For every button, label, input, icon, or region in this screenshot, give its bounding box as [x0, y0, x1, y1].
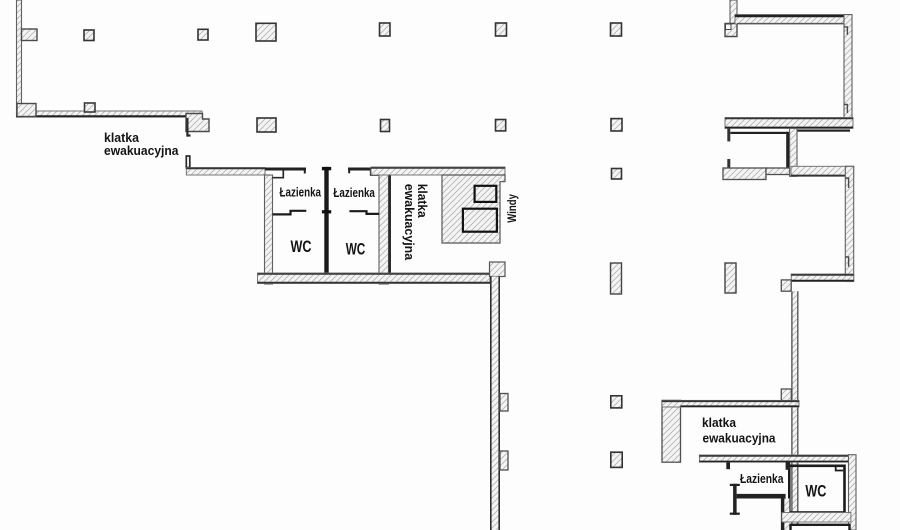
svg-text:WC: WC: [346, 239, 366, 258]
svg-text:Łazienka: Łazienka: [280, 185, 322, 200]
svg-text:ewakuacyjna: ewakuacyjna: [104, 143, 179, 158]
svg-text:Windy: Windy: [507, 194, 519, 223]
svg-text:klatka: klatka: [702, 415, 737, 430]
svg-text:ewakuacyjna: ewakuacyjna: [402, 184, 417, 261]
svg-text:Łazienka: Łazienka: [740, 471, 784, 486]
svg-text:WC: WC: [805, 482, 826, 501]
svg-text:ewakuacyjna: ewakuacyjna: [703, 430, 777, 445]
svg-text:WC: WC: [291, 237, 312, 256]
svg-text:Łazienka: Łazienka: [333, 185, 375, 200]
